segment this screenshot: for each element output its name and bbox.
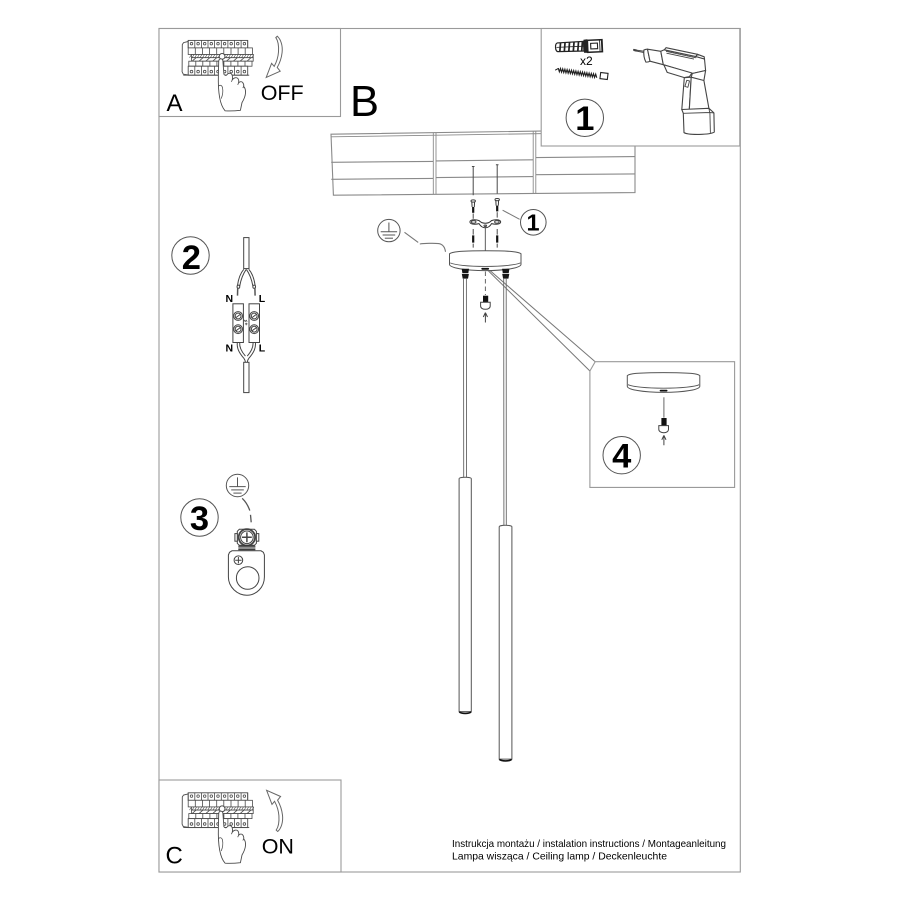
svg-text:2: 2	[182, 239, 201, 277]
svg-text:N: N	[226, 293, 234, 305]
svg-text:1: 1	[527, 209, 540, 235]
svg-text:L: L	[259, 293, 266, 305]
svg-text:ON: ON	[262, 835, 294, 859]
svg-text:4: 4	[612, 438, 631, 476]
svg-text:B: B	[350, 78, 379, 126]
svg-text:OFF: OFF	[261, 81, 304, 105]
svg-text:C: C	[166, 843, 183, 870]
svg-text:Instrukcja montażu / instalati: Instrukcja montażu / instalation instruc…	[452, 839, 726, 850]
svg-text:A: A	[167, 90, 183, 117]
svg-text:L: L	[259, 342, 266, 354]
svg-text:3: 3	[190, 500, 209, 538]
svg-text:N: N	[226, 342, 234, 354]
svg-text:x2: x2	[580, 54, 593, 68]
svg-text:1: 1	[575, 100, 594, 138]
svg-text:Lampa wisząca / Ceiling lamp /: Lampa wisząca / Ceiling lamp / Deckenleu…	[452, 851, 667, 862]
